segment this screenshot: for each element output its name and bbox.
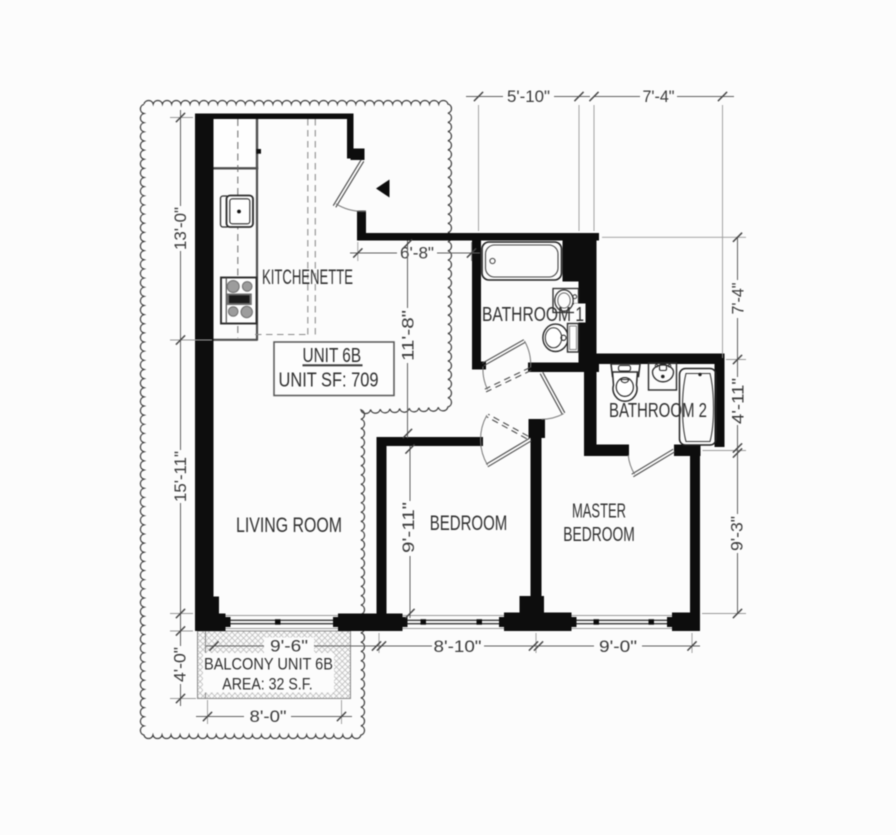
svg-text:9'-0": 9'-0" bbox=[599, 637, 637, 656]
svg-text:BALCONY UNIT 6B: BALCONY UNIT 6B bbox=[204, 655, 333, 673]
svg-text:9'-11": 9'-11" bbox=[399, 502, 418, 553]
svg-text:11'-8": 11'-8" bbox=[399, 310, 418, 361]
svg-text:MASTER: MASTER bbox=[572, 499, 626, 522]
svg-text:5'-10": 5'-10" bbox=[507, 87, 550, 106]
svg-text:13'-0": 13'-0" bbox=[171, 207, 190, 250]
svg-text:9'-6": 9'-6" bbox=[270, 637, 308, 656]
svg-text:BEDROOM: BEDROOM bbox=[430, 511, 508, 535]
svg-text:AREA: 32 S.F.: AREA: 32 S.F. bbox=[222, 675, 313, 693]
svg-text:BATHROOM 1: BATHROOM 1 bbox=[482, 304, 584, 326]
svg-text:8'-10": 8'-10" bbox=[434, 637, 482, 656]
svg-text:7'-4": 7'-4" bbox=[729, 283, 748, 315]
svg-text:4'-0": 4'-0" bbox=[171, 647, 190, 682]
svg-text:UNIT SF: 709: UNIT SF: 709 bbox=[279, 370, 379, 392]
svg-text:8'-0": 8'-0" bbox=[250, 707, 287, 726]
svg-text:BEDROOM: BEDROOM bbox=[563, 523, 635, 546]
svg-text:7'-4": 7'-4" bbox=[643, 87, 675, 106]
svg-text:UNIT 6B: UNIT 6B bbox=[303, 345, 362, 367]
svg-text:4'-11": 4'-11" bbox=[729, 378, 748, 424]
svg-text:LIVING ROOM: LIVING ROOM bbox=[236, 513, 342, 537]
svg-text:BATHROOM 2: BATHROOM 2 bbox=[609, 400, 707, 422]
svg-text:15'-11": 15'-11" bbox=[171, 451, 190, 502]
svg-text:KITCHENETTE: KITCHENETTE bbox=[262, 266, 353, 289]
svg-text:9'-3": 9'-3" bbox=[728, 516, 747, 551]
